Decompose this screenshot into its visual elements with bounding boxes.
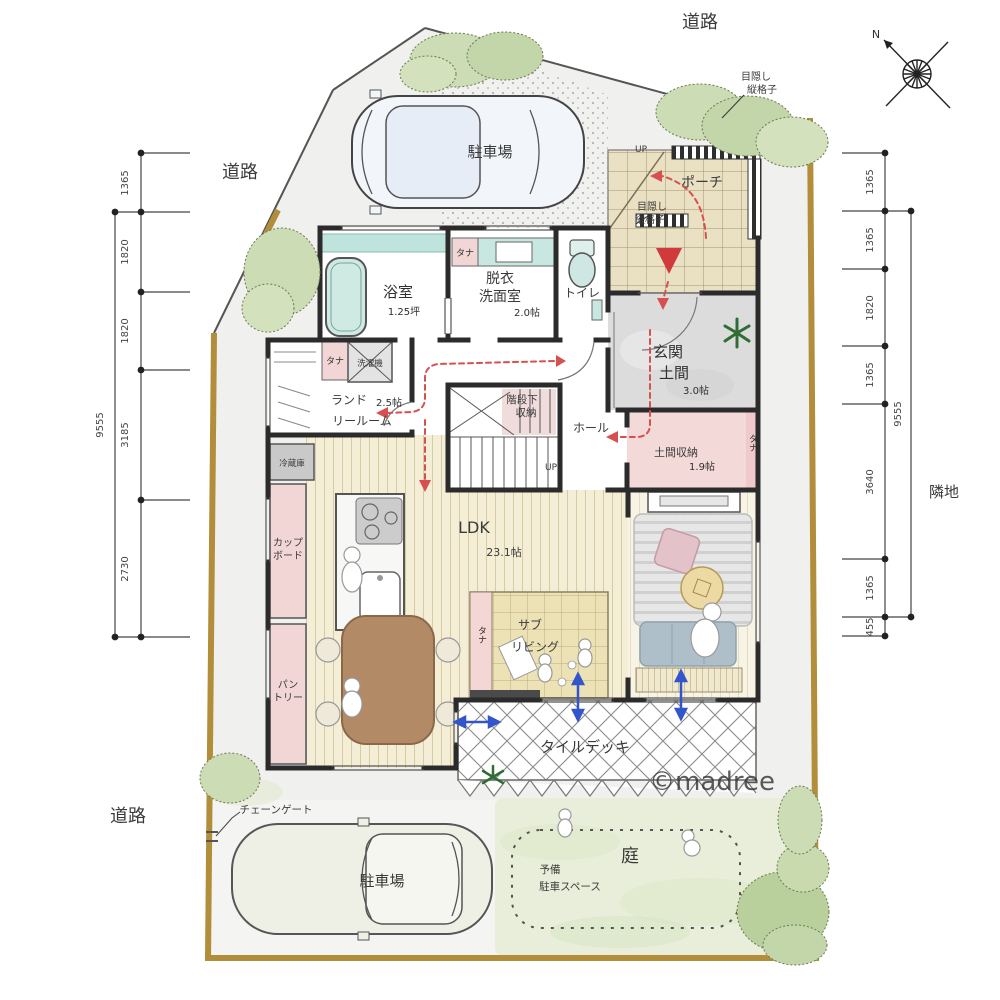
fridge-label: 冷蔵庫 bbox=[279, 458, 305, 469]
laundry-label-2: リールーム bbox=[332, 414, 392, 428]
washroom-label-2: 洗面室 bbox=[479, 288, 521, 305]
ldk-size: 23.1帖 bbox=[486, 546, 522, 559]
road-label-bottom-left: 道路 bbox=[110, 806, 146, 827]
garden-label: 庭 bbox=[621, 846, 639, 867]
sub-living-shelf bbox=[470, 592, 492, 698]
genkan-size: 3.0帖 bbox=[683, 384, 709, 397]
compass: N bbox=[872, 28, 950, 108]
toilet-hand-sink bbox=[592, 300, 602, 320]
parking-bottom-label: 駐車場 bbox=[359, 872, 404, 890]
bath-size: 1.25坪 bbox=[388, 305, 420, 318]
dim-left-total: 9555 bbox=[95, 412, 106, 437]
sub-living-label-2: リビング bbox=[511, 640, 559, 654]
sub-living-label-1: サブ bbox=[518, 617, 542, 632]
washroom-size: 2.0帖 bbox=[514, 306, 540, 319]
parking-top-label: 駐車場 bbox=[467, 143, 512, 161]
shelf-label-laundry: タナ bbox=[326, 356, 344, 367]
laundry-size: 2.5帖 bbox=[376, 396, 402, 409]
dim-right-5: 1365 bbox=[865, 575, 876, 600]
lattice-right bbox=[748, 159, 761, 239]
hall-label: ホール bbox=[573, 421, 609, 435]
washroom-label-1: 脱衣 bbox=[486, 271, 514, 287]
floor-plan-page: 1365 1820 1820 3185 2730 9555 1365 1365 … bbox=[0, 0, 1000, 1000]
dim-left-3: 3185 bbox=[120, 422, 131, 447]
ldk-label: LDK bbox=[458, 518, 490, 537]
dim-right-total: 9555 bbox=[893, 401, 904, 426]
toilet-bowl bbox=[569, 253, 595, 287]
dim-right-6: 455 bbox=[865, 617, 876, 636]
dim-right-4: 3640 bbox=[865, 469, 876, 494]
dim-left-4: 2730 bbox=[120, 556, 131, 581]
dim-right-3: 1365 bbox=[865, 362, 876, 387]
porch bbox=[608, 146, 761, 293]
toilet-label: トイレ bbox=[564, 286, 600, 300]
dim-left-1: 1820 bbox=[120, 239, 131, 264]
engawa-slats bbox=[636, 668, 742, 692]
dim-left-0: 1365 bbox=[120, 170, 131, 195]
dining-chair bbox=[436, 638, 460, 662]
lattice-porch-label-2: 縦格子 bbox=[635, 213, 665, 226]
dimension-labels-left: 1365 1820 1820 3185 2730 9555 bbox=[95, 170, 131, 581]
bath-window-ledge bbox=[322, 234, 446, 252]
road-label-top: 道路 bbox=[682, 12, 718, 33]
dim-right-1: 1365 bbox=[865, 227, 876, 252]
tile-deck-label: タイルデッキ bbox=[540, 738, 630, 756]
dimension-chain-right bbox=[842, 150, 914, 640]
shelf-label-subliving: タナ bbox=[476, 626, 487, 644]
shelf-label-doma: タナ bbox=[747, 434, 758, 452]
cupboard-label-2: ボード bbox=[273, 550, 303, 562]
sofa bbox=[640, 622, 736, 666]
lattice-top-label-2: 縦格子 bbox=[747, 83, 777, 96]
genkan-label-2: 土間 bbox=[659, 364, 689, 382]
neighbor-label: 隣地 bbox=[929, 483, 959, 501]
doma-storage-size: 1.9帖 bbox=[689, 460, 715, 473]
porch-label: ポーチ bbox=[681, 175, 723, 191]
compass-north-label: N bbox=[872, 28, 880, 41]
stair-storage-label-1: 階段下 bbox=[506, 393, 538, 406]
stove bbox=[356, 498, 402, 544]
doma-storage-label: 土間収納 bbox=[654, 446, 698, 459]
watermark: ©madree bbox=[649, 767, 775, 797]
road-label-upper-left: 道路 bbox=[222, 162, 258, 183]
floor-plan-drawing: 1365 1820 1820 3185 2730 9555 1365 1365 … bbox=[0, 0, 1000, 1000]
genkan-label-1: 玄関 bbox=[653, 343, 683, 361]
pantry-label-2: トリー bbox=[273, 693, 303, 704]
bath-label: 浴室 bbox=[383, 283, 413, 301]
dim-right-2: 1820 bbox=[865, 295, 876, 320]
dining-chair bbox=[316, 638, 340, 662]
washer-label: 洗濯機 bbox=[357, 358, 383, 369]
vanity-sink bbox=[496, 242, 532, 262]
living-furniture bbox=[634, 492, 752, 692]
dining-chair bbox=[316, 702, 340, 726]
pantry-label-1: パン bbox=[278, 679, 299, 691]
laundry-label-1: ランド bbox=[331, 393, 367, 407]
spare-parking-label-1: 予備 bbox=[540, 863, 561, 876]
cupboard-label-1: カップ bbox=[273, 537, 303, 549]
dim-left-2: 1820 bbox=[120, 318, 131, 343]
dim-right-0: 1365 bbox=[865, 169, 876, 194]
spare-parking-label-2: 駐車スペース bbox=[539, 880, 601, 893]
lattice-top-label-1: 目隠し bbox=[741, 71, 771, 83]
chain-gate-label: チェーンゲート bbox=[240, 804, 313, 816]
tv bbox=[660, 496, 728, 506]
stairs bbox=[448, 385, 560, 490]
round-table bbox=[681, 567, 723, 609]
stair-storage-label-2: 収納 bbox=[516, 406, 537, 419]
shelf-label-washroom: タナ bbox=[456, 248, 474, 259]
tatami-step bbox=[470, 690, 540, 698]
up-label-porch: UP bbox=[635, 145, 648, 155]
up-label-stairs: UP bbox=[545, 463, 558, 473]
lattice-porch-label-1: 目隠し bbox=[637, 201, 667, 213]
